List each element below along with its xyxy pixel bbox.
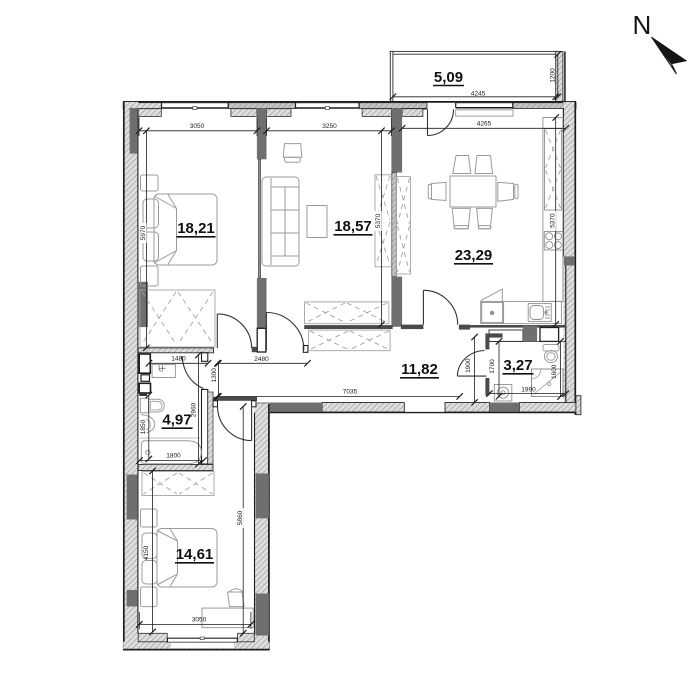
svg-text:2480: 2480 (254, 356, 269, 363)
svg-text:14,61: 14,61 (176, 546, 214, 563)
svg-text:18,21: 18,21 (177, 220, 215, 237)
svg-text:3050: 3050 (190, 123, 205, 130)
svg-text:18,57: 18,57 (334, 218, 372, 235)
svg-text:4,97: 4,97 (162, 412, 191, 429)
svg-text:4265: 4265 (477, 121, 492, 128)
svg-text:1700: 1700 (489, 359, 496, 374)
svg-text:5370: 5370 (549, 213, 556, 228)
svg-text:7035: 7035 (343, 388, 358, 395)
svg-text:11,82: 11,82 (401, 361, 438, 378)
svg-text:23,29: 23,29 (455, 247, 493, 264)
svg-text:3250: 3250 (322, 123, 337, 130)
svg-text:3050: 3050 (192, 616, 207, 623)
svg-text:N: N (633, 10, 652, 40)
svg-text:2960: 2960 (190, 402, 197, 417)
svg-text:5970: 5970 (140, 225, 147, 240)
svg-text:3,27: 3,27 (503, 357, 532, 374)
svg-text:1850: 1850 (140, 419, 147, 434)
svg-text:5,09: 5,09 (434, 69, 463, 86)
svg-text:1200: 1200 (550, 68, 557, 83)
svg-text:1990: 1990 (521, 387, 536, 394)
svg-text:1480: 1480 (171, 355, 186, 362)
svg-text:5370: 5370 (375, 213, 382, 228)
svg-text:1800: 1800 (166, 453, 181, 460)
svg-text:4245: 4245 (471, 90, 486, 97)
svg-text:1900: 1900 (465, 358, 472, 373)
svg-text:4150: 4150 (143, 545, 150, 560)
svg-text:5860: 5860 (237, 510, 244, 525)
svg-text:1300: 1300 (211, 368, 218, 383)
svg-text:1600: 1600 (551, 364, 558, 379)
